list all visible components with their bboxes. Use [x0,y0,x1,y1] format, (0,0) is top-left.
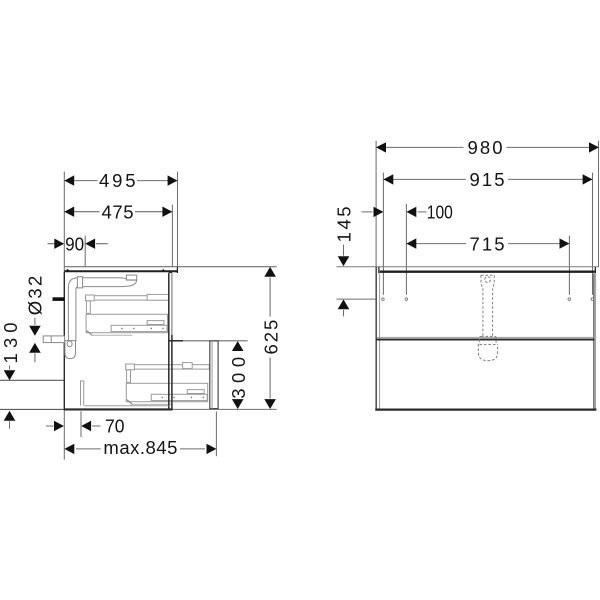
svg-text:300: 300 [228,357,249,399]
svg-text:145: 145 [333,206,354,242]
svg-text:130: 130 [0,322,21,363]
svg-text:625: 625 [261,320,282,355]
svg-text:475: 475 [102,201,134,222]
svg-text:915: 915 [470,169,505,190]
svg-text:715: 715 [470,233,505,254]
svg-text:70: 70 [105,416,125,437]
svg-text:max.845: max.845 [103,437,177,458]
svg-text:495: 495 [99,170,136,191]
svg-text:100: 100 [427,202,453,223]
svg-text:90: 90 [65,233,84,254]
svg-text:Ø32: Ø32 [25,276,46,316]
svg-text:980: 980 [468,137,503,158]
